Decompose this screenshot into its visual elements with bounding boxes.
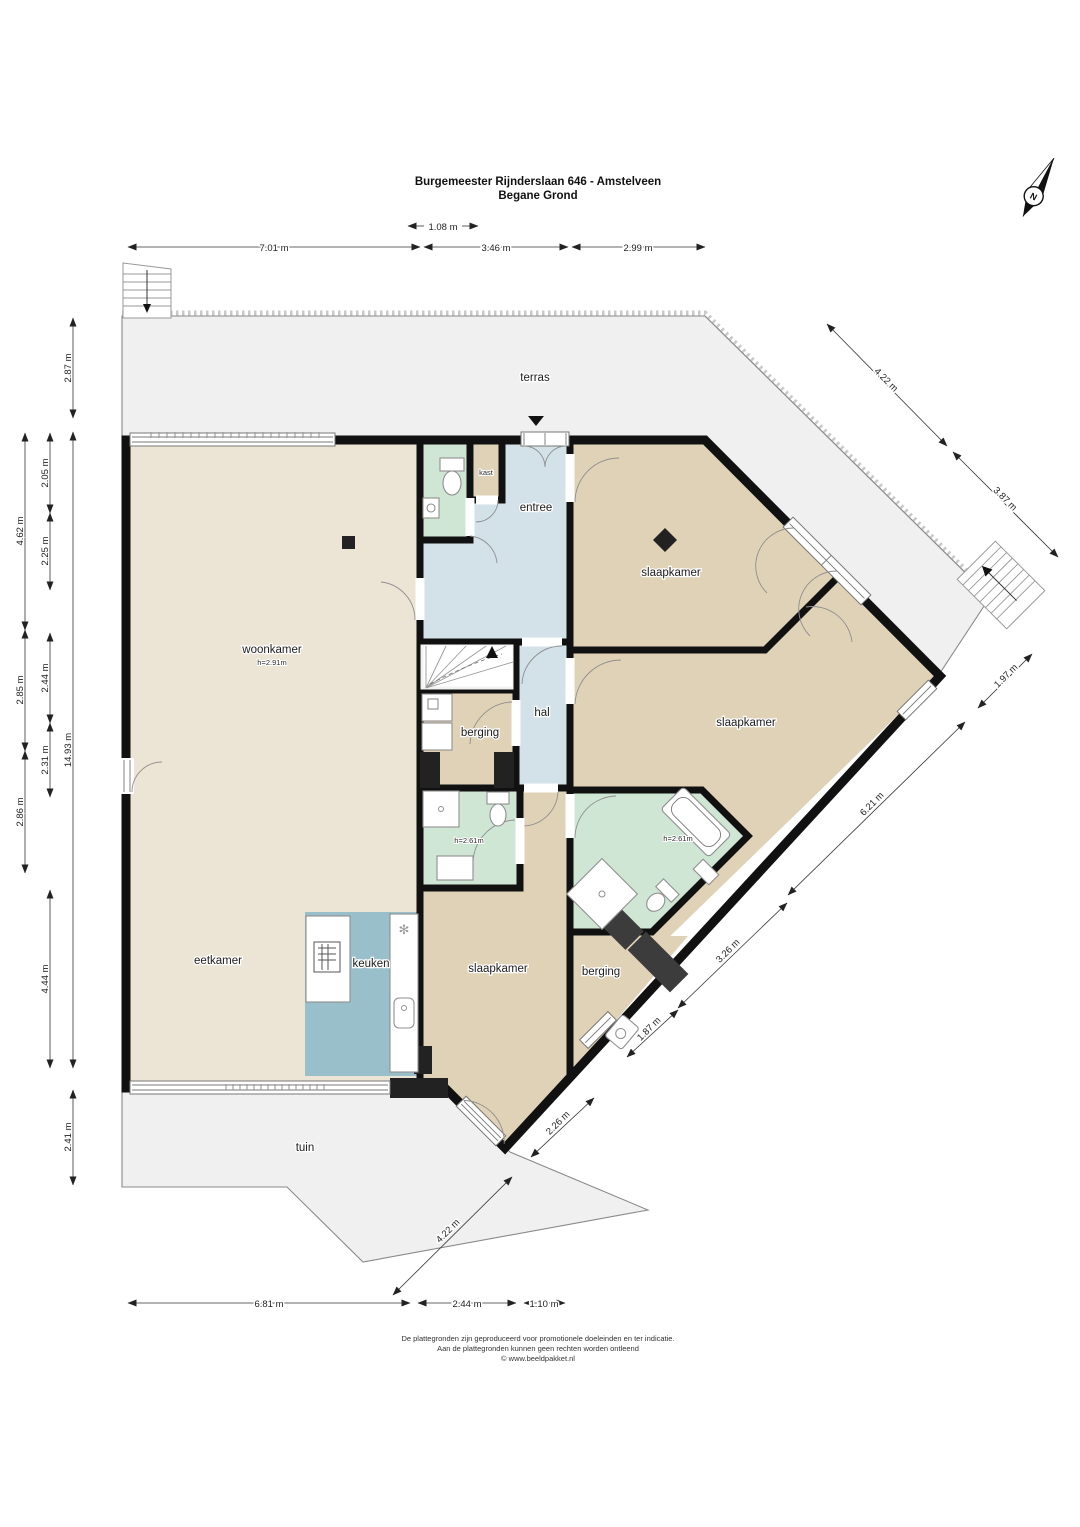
washbasin (437, 856, 473, 880)
dim-top-3: 2.99 m (623, 243, 652, 254)
label-berging-mid: berging (461, 727, 499, 739)
label-tuin: tuin (296, 1142, 315, 1154)
interior-stairs (420, 644, 514, 690)
dim-left-205: 2.05 m (40, 458, 51, 487)
duct-block (494, 752, 514, 788)
dim-left-286: 2.86 m (15, 797, 26, 826)
toilet-bowl (443, 471, 461, 495)
footer-line1: De plattegronden zijn geproduceerd voor … (401, 1334, 674, 1343)
dryer (422, 723, 452, 750)
label-eetkamer: eetkamer (194, 955, 242, 967)
dim-left-444: 4.44 m (40, 964, 51, 993)
dim-right-387: 3.87 m (991, 485, 1019, 513)
door-gap (566, 454, 575, 502)
label-slaapkamer-top: slaapkamer (641, 567, 701, 579)
label-slaapkamer-bottom: slaapkamer (468, 963, 528, 975)
label-keuken: keuken (352, 958, 389, 970)
dim-right-422a: 4.22 m (872, 366, 900, 394)
dim-left-231: 2.31 m (40, 745, 51, 774)
floorplan-page: Burgemeester Rijnderslaan 646 - Amstelve… (0, 0, 1080, 1527)
dim-left-1493: 14.93 m (63, 733, 74, 767)
column (342, 536, 355, 549)
dim-right-226: 2.26 m (544, 1109, 572, 1137)
footer-line3: © www.beeldpakket.nl (501, 1354, 575, 1363)
toilet-tank (440, 458, 464, 471)
label-slaapkamer-right: slaapkamer (716, 717, 776, 729)
dim-right-621: 6.21 m (858, 790, 886, 818)
dim-right-197: 1.97 m (992, 662, 1020, 690)
dim-left-244: 2.44 m (40, 663, 51, 692)
dim-top-2: 3.46 m (481, 243, 510, 254)
toilet-tank (487, 792, 509, 804)
dim-left-225: 2.25 m (40, 536, 51, 565)
dim-top-1: 7.01 m (259, 243, 288, 254)
shower-tray (423, 791, 459, 827)
door-gap (466, 498, 475, 536)
label-woonkamer-height: h=2.91m (257, 658, 286, 667)
label-woonkamer: woonkamer (241, 644, 302, 656)
kitchen-counter (390, 914, 418, 1072)
door-gap (512, 700, 521, 746)
footer-line2: Aan de plattegronden kunnen geen rechten… (437, 1344, 639, 1353)
dim-bottom-681: 6.81 m (254, 1299, 283, 1310)
wall-block (390, 1078, 448, 1098)
dim-left-285: 2.85 m (15, 675, 26, 704)
dim-left-462: 4.62 m (15, 516, 26, 545)
door-gap (566, 794, 575, 838)
door-gap (522, 638, 562, 647)
duct-block (420, 752, 440, 788)
kitchen-sink (394, 998, 414, 1028)
label-bath2-height: h=2.61m (663, 834, 692, 843)
plan-subtitle: Begane Grond (498, 190, 577, 202)
toilet-bowl (490, 804, 506, 826)
dim-top-small: 1.08 m (428, 222, 457, 233)
fridge-snowflake-icon: ✻ (399, 922, 410, 937)
door-gap (524, 784, 558, 793)
plan-title: Burgemeester Rijnderslaan 646 - Amstelve… (415, 176, 661, 188)
dim-left-287: 2.87 m (63, 353, 74, 382)
floorplan-canvas: Burgemeester Rijnderslaan 646 - Amstelve… (0, 0, 1080, 1527)
dim-left-241: 2.41 m (63, 1122, 74, 1151)
dim-bottom-244: 2.44 m (452, 1299, 481, 1310)
dim-bottom-110: 1.10 m (529, 1299, 558, 1310)
compass-rose-icon: N (1015, 154, 1063, 221)
door-gap (516, 818, 525, 864)
exterior-stair-topleft (123, 263, 171, 318)
door-gap (476, 496, 498, 505)
label-terras: terras (520, 372, 550, 384)
label-hal: hal (534, 707, 549, 719)
door-gap (416, 578, 425, 620)
door-gap (566, 658, 575, 704)
dim-right-326: 3.26 m (714, 937, 742, 965)
label-kast: kast (479, 468, 494, 477)
label-bath1-height: h=2.61m (454, 836, 483, 845)
dim-right-187: 1.87 m (635, 1015, 663, 1043)
label-entree: entree (520, 502, 553, 514)
window (130, 433, 335, 446)
footer: De plattegronden zijn geproduceerd voor … (401, 1334, 674, 1363)
label-berging-bottom: berging (582, 966, 620, 978)
washer (422, 694, 452, 721)
